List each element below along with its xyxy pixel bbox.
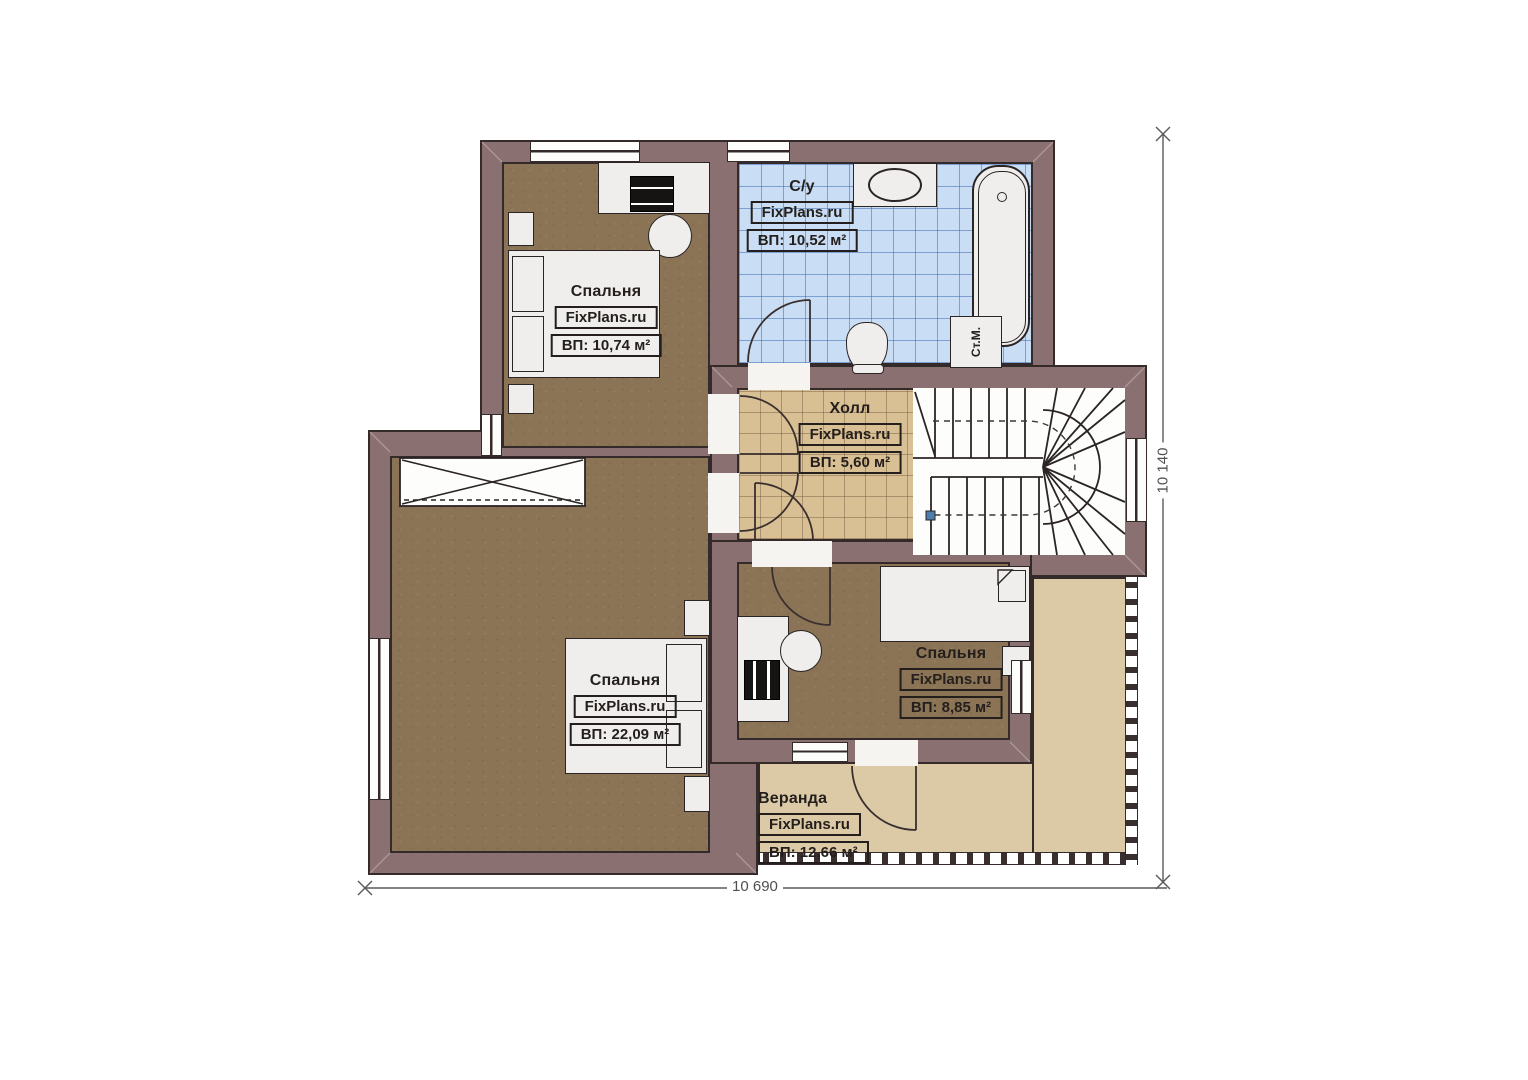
room-area: ВП: 5,60 м² xyxy=(799,451,901,474)
pillow-bedroom3 xyxy=(998,570,1026,602)
room-brand: FixPlans.ru xyxy=(758,813,861,836)
door-opening-bedroom1 xyxy=(708,394,739,454)
room-name: Холл xyxy=(830,400,871,418)
room-label-bedroom-2: Спальня FixPlans.ru ВП: 22,09 м² xyxy=(570,672,681,746)
veranda-railing-right xyxy=(1125,577,1138,865)
bathtub-drain xyxy=(997,192,1007,202)
window-stairwell xyxy=(1126,438,1147,522)
pillow-bedroom1-a xyxy=(512,256,544,312)
window-left-small xyxy=(481,414,502,456)
nightstand-bedroom1-bottom xyxy=(508,384,534,414)
room-brand: FixPlans.ru xyxy=(799,423,902,446)
chair-bedroom3 xyxy=(780,630,822,672)
dimension-right: 10 140 xyxy=(1154,443,1171,499)
room-brand: FixPlans.ru xyxy=(900,668,1003,691)
room-brand: FixPlans.ru xyxy=(555,306,658,329)
window-veranda xyxy=(792,742,848,762)
floor-plan-canvas: Ст.М. xyxy=(0,0,1528,1080)
floor-veranda-right xyxy=(1032,577,1138,862)
toilet-base xyxy=(852,364,884,374)
sink-basin xyxy=(868,168,922,202)
room-name: С/у xyxy=(789,178,815,196)
window-bedroom3 xyxy=(1011,660,1032,714)
door-opening-bedroom2 xyxy=(708,473,739,533)
room-label-bedroom-3: Спальня FixPlans.ru ВП: 8,85 м² xyxy=(900,645,1003,719)
room-area: ВП: 12,66 м² xyxy=(758,841,869,864)
room-area: ВП: 22,09 м² xyxy=(570,723,681,746)
room-brand: FixPlans.ru xyxy=(751,201,854,224)
window-left-bedroom2 xyxy=(369,638,390,800)
room-area: ВП: 8,85 м² xyxy=(900,696,1002,719)
window-top-bathroom xyxy=(727,141,790,162)
room-area: ВП: 10,52 м² xyxy=(747,229,858,252)
window-top-bedroom1 xyxy=(530,141,640,162)
room-name: Спальня xyxy=(916,645,987,663)
computer-icon xyxy=(630,176,674,212)
room-label-bedroom-1: Спальня FixPlans.ru ВП: 10,74 м² xyxy=(551,283,662,357)
pillow-bedroom1-b xyxy=(512,316,544,372)
door-opening-veranda xyxy=(855,740,918,766)
nightstand-bedroom1-top xyxy=(508,212,534,246)
nightstand-bedroom2-bottom xyxy=(684,776,710,812)
computer-icon-bedroom3 xyxy=(744,660,780,700)
room-name: Спальня xyxy=(590,672,661,690)
room-label-veranda: Веранда FixPlans.ru ВП: 12,66 м² xyxy=(758,790,869,864)
dimension-bottom: 10 690 xyxy=(727,878,783,895)
door-opening-bathroom xyxy=(748,363,810,390)
door-opening-bedroom3 xyxy=(752,541,832,567)
room-brand: FixPlans.ru xyxy=(574,695,677,718)
floor-stairwell xyxy=(913,388,1125,555)
room-name: Веранда xyxy=(758,790,827,808)
room-name: Спальня xyxy=(571,283,642,301)
room-label-hall: Холл FixPlans.ru ВП: 5,60 м² xyxy=(799,400,902,474)
nightstand-bedroom2-top xyxy=(684,600,710,636)
washing-machine-label: Ст.М. xyxy=(950,316,1002,368)
room-label-bathroom: С/у FixPlans.ru ВП: 10,52 м² xyxy=(747,178,858,252)
room-area: ВП: 10,74 м² xyxy=(551,334,662,357)
